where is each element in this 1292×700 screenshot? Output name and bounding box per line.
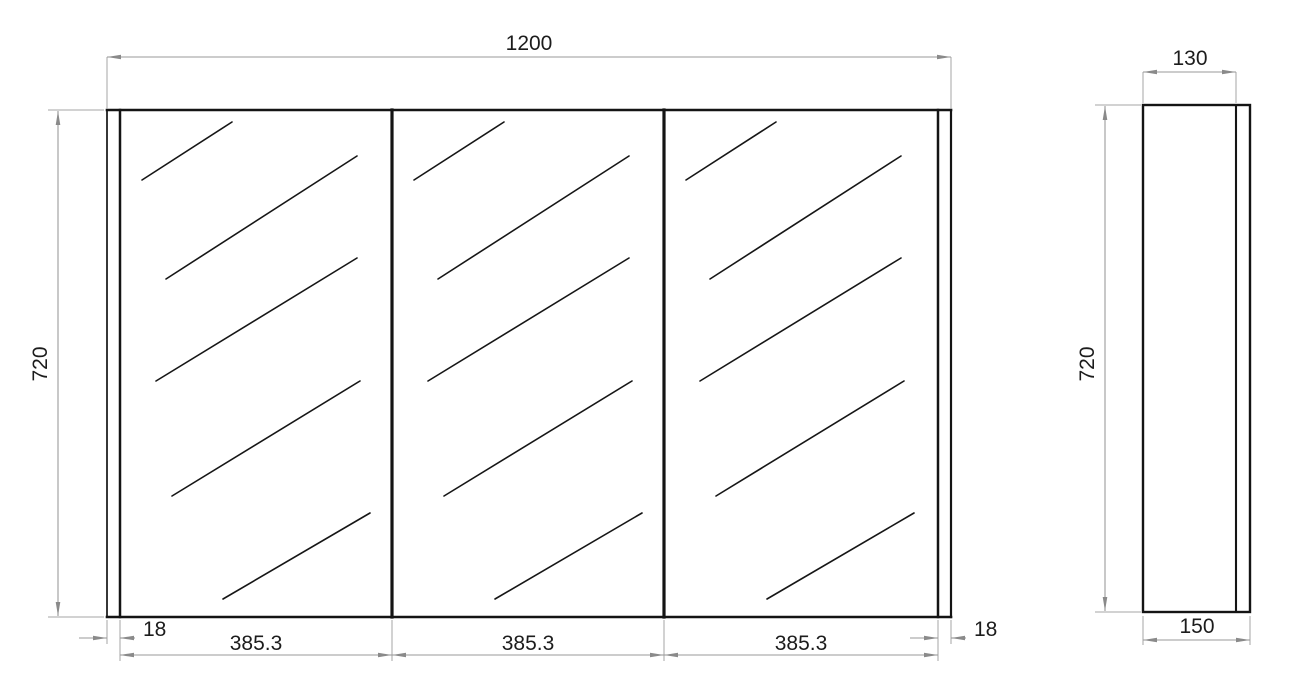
technical-drawing: 1200 720 18 385.3 385.3 385.3 [0,0,1292,700]
mirror-hatch-line [428,258,629,381]
dim-front-overall-width: 1200 [107,32,951,109]
dim-label-door-1: 385.3 [230,632,283,655]
mirror-hatch-line [414,122,504,180]
mirror-hatch-line [710,156,901,279]
dim-front-overall-height: 720 [29,110,104,617]
mirror-hatch-line [700,258,901,381]
dim-side-body-depth: 130 [1143,47,1236,103]
mirror-hatch-door-1 [142,122,370,599]
side-view: 130 720 150 [1076,47,1250,645]
mirror-hatch-line [142,122,232,180]
front-view: 1200 720 18 385.3 385.3 385.3 [29,32,997,661]
dim-side-overall-depth: 150 [1143,615,1250,645]
mirror-hatch-line [686,122,776,180]
mirror-hatch-line [444,381,632,496]
mirror-hatch-line [156,258,357,381]
mirror-hatch-line [223,513,370,599]
mirror-hatch-line [438,156,629,279]
dim-label-side-height: 720 [1076,346,1099,381]
dim-right-end-panel: 18 [910,618,997,644]
mirror-hatch-door-3 [686,122,914,599]
dim-label-side-overall-depth: 150 [1179,615,1214,638]
dim-label-side-body-depth: 130 [1172,47,1207,70]
dim-label-door-3: 385.3 [775,632,828,655]
mirror-hatch-line [166,156,357,279]
dim-label-door-2: 385.3 [502,632,555,655]
dim-door-widths: 385.3 385.3 385.3 [120,620,938,661]
mirror-hatch-door-2 [414,122,642,599]
dim-label-front-height: 720 [29,346,52,381]
mirror-hatch-line [495,513,642,599]
side-body-outline [1143,105,1250,612]
cabinet-outline [107,110,951,617]
side-outline [1143,105,1250,612]
dim-label-left-panel: 18 [143,618,166,641]
mirror-hatch-line [172,381,360,496]
mirror-hatch-line [767,513,914,599]
dim-label-right-panel: 18 [974,618,997,641]
mirror-hatch-line [716,381,904,496]
dim-label-front-width: 1200 [506,32,553,55]
dim-side-height: 720 [1076,105,1141,612]
drawing-canvas: 1200 720 18 385.3 385.3 385.3 [0,0,1292,700]
